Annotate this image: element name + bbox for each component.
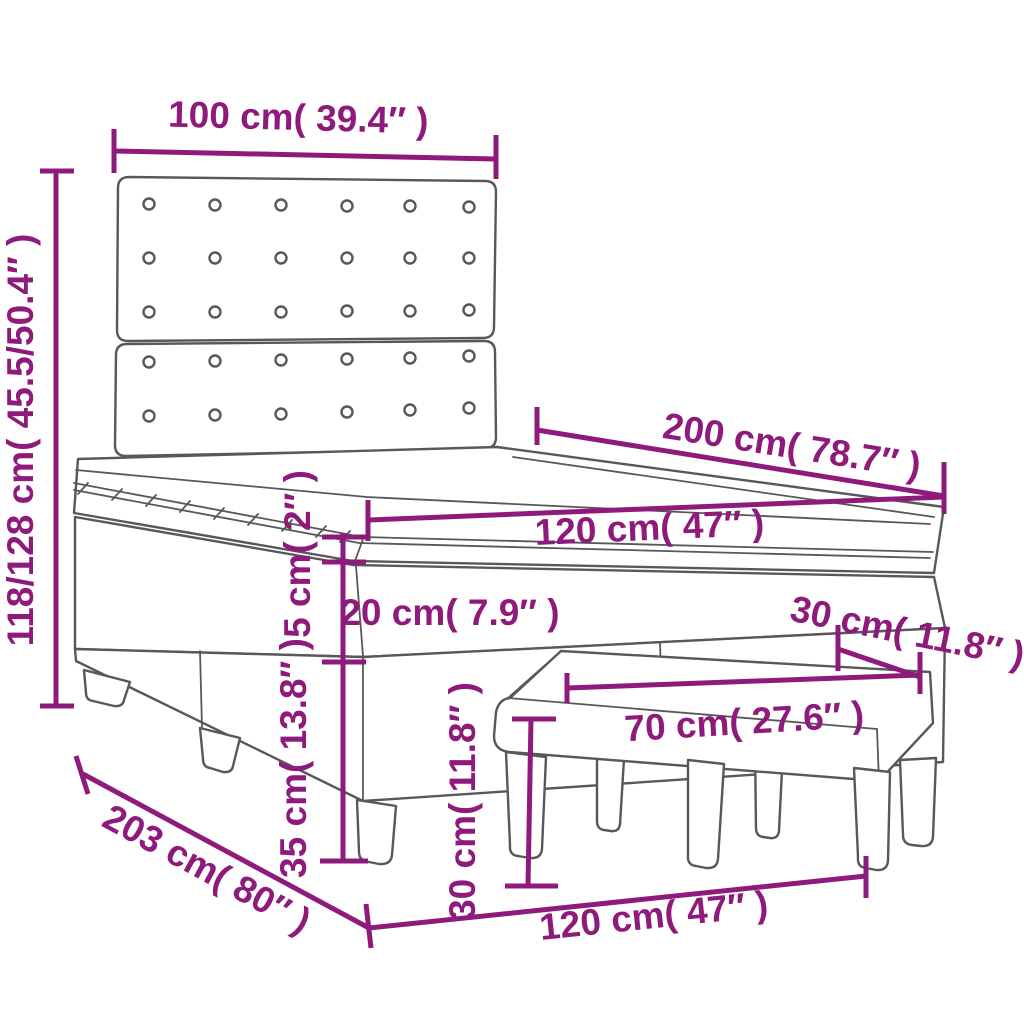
dim-base-height-label: 35 cm( 13.8″ ) [273, 638, 314, 878]
bed-leg [357, 800, 396, 864]
bench-front-leg [506, 752, 546, 858]
headboard-lower-panel [115, 341, 496, 456]
diagram-canvas: 100 cm( 39.4″ ) 118/128 cm( 45.5/50.4″ )… [0, 0, 1024, 1024]
dim-overall-height-label: 118/128 cm( 45.5/50.4″ ) [0, 234, 41, 647]
headboard-upper-panel [117, 177, 496, 341]
bench-front-leg [688, 760, 724, 868]
dim-headboard-width-label: 100 cm( 39.4″ ) [168, 94, 429, 142]
dim-overall-height-line [40, 171, 74, 706]
headboard [115, 177, 496, 456]
bench-front-leg [854, 768, 890, 870]
dim-bed-width-bottom-label: 120 cm( 47″ ) [537, 883, 770, 948]
dim-mattress-thickness-label: 20 cm( 7.9″ ) [340, 592, 559, 633]
bed-drawing [74, 177, 945, 870]
dimension-diagram: 100 cm( 39.4″ ) 118/128 cm( 45.5/50.4″ )… [0, 0, 1024, 1024]
dim-topper-thickness-label: 5 cm( 2″ ) [277, 470, 318, 638]
dim-bench-height-label: 30 cm( 11.8″ ) [442, 682, 483, 920]
bed-leg [900, 758, 936, 846]
